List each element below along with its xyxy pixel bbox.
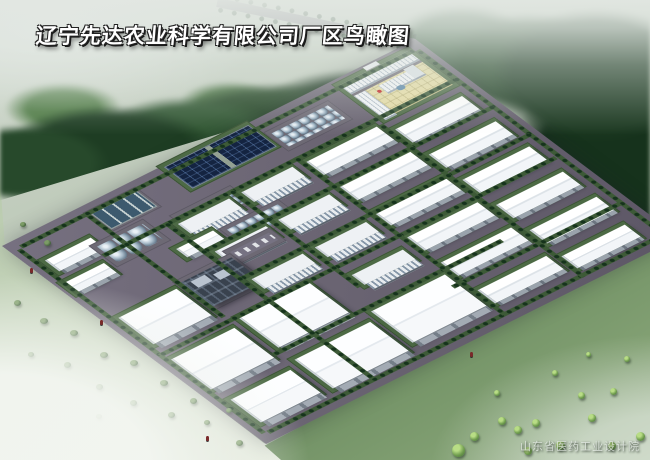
lawn-bush xyxy=(20,222,26,227)
lawn-tree xyxy=(452,444,465,457)
lawn-tree xyxy=(588,414,596,422)
lawn-bush xyxy=(160,380,168,386)
lawn-bush xyxy=(130,400,137,406)
lawn-bush xyxy=(14,300,21,306)
lawn-bush xyxy=(64,362,71,368)
lawn-bush xyxy=(130,360,138,366)
lawn-tree xyxy=(586,352,591,357)
lawn-tree xyxy=(624,356,630,362)
lawn-bush xyxy=(100,352,108,358)
lawn-tree xyxy=(494,390,500,396)
lawn-bush xyxy=(40,318,48,324)
lawn-bush xyxy=(168,412,175,418)
image-title: 辽宁先达农业科学有限公司厂区鸟瞰图 xyxy=(35,20,412,50)
campus-plate xyxy=(2,39,650,444)
lawn-bush xyxy=(204,420,210,425)
pedestrian-figure xyxy=(470,352,473,357)
aerial-rendering: 辽宁先达农业科学有限公司厂区鸟瞰图 山东省医药工业设计院 xyxy=(0,0,650,460)
lawn-bush xyxy=(96,384,103,390)
lawn-bush xyxy=(190,398,197,404)
lawn-bush xyxy=(70,330,78,336)
designer-watermark: 山东省医药工业设计院 xyxy=(520,438,640,454)
lawn-tree xyxy=(498,417,506,425)
pedestrian-figure xyxy=(206,436,209,441)
lawn-bush xyxy=(28,352,34,357)
lawn-tree xyxy=(610,388,617,395)
plant-structure xyxy=(190,275,212,288)
building-facade xyxy=(579,237,645,271)
building-facade xyxy=(78,273,121,295)
lawn-tree xyxy=(470,432,479,441)
lawn-tree xyxy=(514,426,522,434)
lawn-bush xyxy=(96,414,102,419)
lawn-tree xyxy=(578,392,585,399)
lawn-tree xyxy=(552,370,558,376)
lawn-bush xyxy=(236,440,243,446)
lawn-tree xyxy=(532,419,540,427)
